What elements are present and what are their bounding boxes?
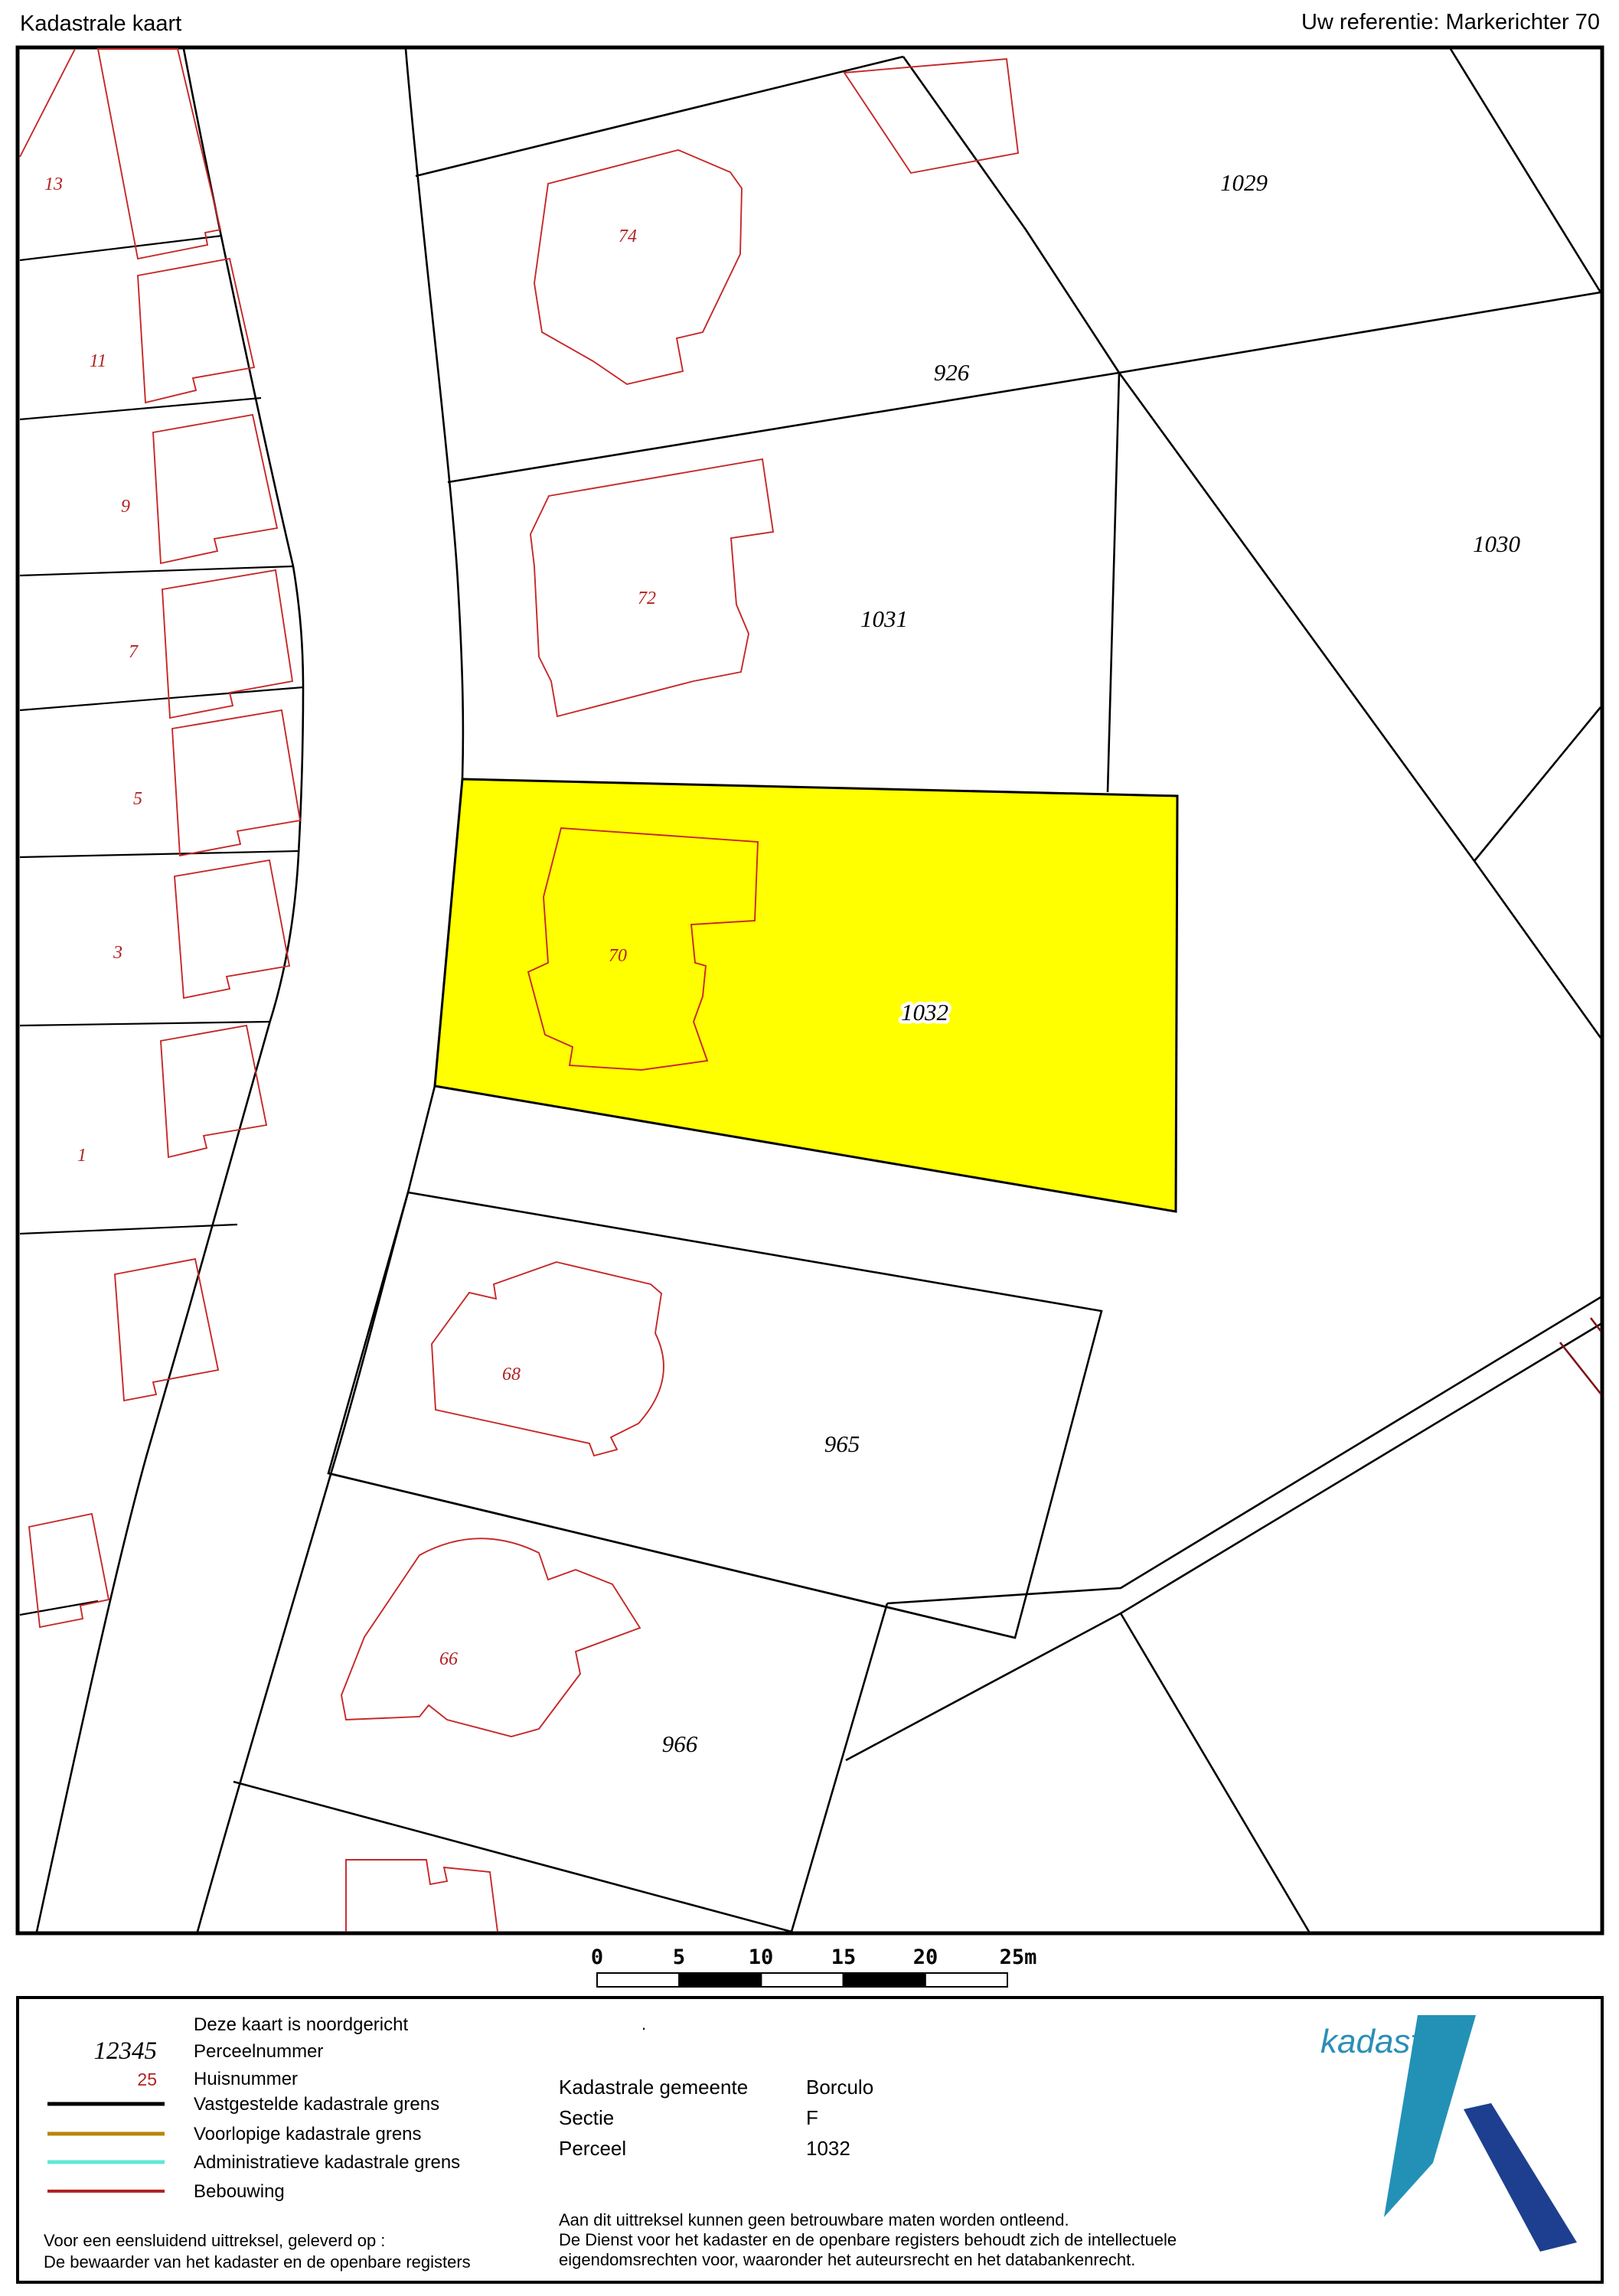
rowhouse-3	[175, 860, 289, 998]
house-number-13: 13	[44, 174, 63, 194]
boundary-1030-wedge-upper	[1474, 707, 1601, 861]
legend-label-huisnummer: Huisnummer	[194, 2069, 298, 2089]
road-left-edge	[37, 49, 303, 1932]
parcel-965-outline	[328, 1192, 1102, 1638]
building-66	[341, 1538, 640, 1737]
parcel-label-1029: 1029	[1220, 169, 1268, 196]
cadastral-extract-page: { "header": { "title": "Kadastrale kaart…	[0, 0, 1619, 2296]
disclaimer-line-2: De Dienst voor het kadaster en de openba…	[559, 2230, 1177, 2249]
house-number-70: 70	[609, 946, 627, 966]
boundary-926-1029	[903, 57, 1119, 373]
house-number-72: 72	[638, 589, 656, 608]
rowhouse-11	[138, 259, 254, 403]
footer-line-1: Voor een eensluidend uittreksel, gelever…	[44, 2231, 385, 2250]
house-number-7: 7	[129, 642, 139, 662]
map-area: 926 1029 1030 1031 1032 965 966 74 72 70…	[18, 47, 1602, 1933]
house-number-1: 1	[77, 1146, 86, 1166]
boundary-966-south-strip	[233, 1782, 792, 1932]
path-edge-upper	[887, 1297, 1601, 1603]
kadaster-logo: kadaster	[1320, 2015, 1577, 2252]
info-label-sectie: Sectie	[559, 2106, 614, 2129]
building-fragment-east-a	[1560, 1342, 1601, 1394]
path-edge-lower	[846, 1324, 1601, 1760]
legend-label-bebouwing: Bebouwing	[194, 2181, 285, 2202]
scale-segment-2	[679, 1973, 761, 1987]
scale-segment-3	[761, 1973, 843, 1987]
scale-label-5: 5	[673, 1945, 685, 1969]
parcel-label-1030: 1030	[1473, 530, 1521, 557]
boundary-1030-wedge-lower	[1474, 861, 1601, 1038]
scale-label-10: 10	[749, 1945, 774, 1969]
house-number-5: 5	[133, 789, 142, 809]
north-orientation-note: Deze kaart is noordgericht	[194, 2014, 408, 2035]
boundary-966-east	[792, 1603, 887, 1932]
reference-text: Uw referentie: Markerichter 70	[1301, 10, 1600, 34]
info-value-perceel: 1032	[806, 2137, 850, 2160]
divider-1-south	[20, 1225, 237, 1234]
boundary-southeast-branch	[1121, 1613, 1309, 1932]
scale-label-0: 0	[591, 1945, 603, 1969]
building-68	[432, 1262, 664, 1456]
legend-label-vastgesteld: Vastgestelde kadastrale grens	[194, 2094, 439, 2115]
kadaster-logo-bar	[1464, 2103, 1577, 2252]
info-value-gemeente: Borculo	[806, 2076, 873, 2099]
rowhouse-9	[153, 415, 277, 563]
legend-box: Deze kaart is noordgericht 12345 Perceel…	[18, 1998, 1602, 2282]
building-partial-top-left-corner	[20, 49, 75, 157]
info-value-sectie: F	[806, 2106, 818, 2129]
boundary-1029-1030	[1119, 292, 1601, 373]
boundary-926-1031	[448, 373, 1119, 482]
scale-segment-4	[844, 1973, 925, 1987]
building-72	[530, 459, 773, 716]
parcel-label-966: 966	[662, 1730, 698, 1757]
disclaimer-line-3: eigendomsrechten voor, waaronder het aut…	[559, 2250, 1135, 2269]
parcel-label-1032: 1032	[901, 999, 948, 1026]
info-label-perceel: Perceel	[559, 2137, 626, 2160]
boundary-965-966	[328, 1473, 1015, 1638]
divider-7-5	[20, 687, 303, 710]
page-title: Kadastrale kaart	[20, 11, 181, 36]
rowhouse-7	[162, 570, 292, 718]
scale-segment-1	[597, 1973, 679, 1987]
parcel-label-965: 965	[824, 1430, 860, 1457]
building-partial-top-right	[844, 59, 1018, 173]
house-number-9: 9	[121, 497, 130, 517]
divider-3-1	[20, 1022, 269, 1026]
divider-5-3	[20, 851, 299, 857]
rowhouse-13	[98, 49, 220, 259]
building-partial-bottom	[346, 1860, 498, 1932]
disclaimer-line-1: Aan dit uittreksel kunnen geen betrouwba…	[559, 2210, 1069, 2229]
house-number-68: 68	[502, 1365, 521, 1384]
boundary-1031-east	[1108, 373, 1119, 792]
scale-bar: 0 5 10 15 20 25m	[591, 1945, 1037, 1987]
house-number-66: 66	[439, 1649, 458, 1669]
house-number-74: 74	[619, 227, 637, 246]
legend-label-perceelnummer: Perceelnummer	[194, 2041, 323, 2062]
footer-line-2: De bewaarder van het kadaster en de open…	[44, 2252, 471, 2272]
info-label-gemeente: Kadastrale gemeente	[559, 2076, 748, 2099]
legend-label-voorlopig: Voorlopige kadastrale grens	[194, 2124, 422, 2144]
info-dot: .	[641, 2014, 646, 2033]
boundary-926-north	[416, 57, 903, 176]
parcel-label-926: 926	[934, 359, 970, 386]
parcel-label-1031: 1031	[860, 605, 908, 632]
parcel-1032-highlight	[435, 779, 1177, 1212]
legend-label-administratief: Administratieve kadastrale grens	[194, 2152, 460, 2173]
sample-house-number: 25	[137, 2069, 157, 2089]
building-74	[534, 150, 742, 384]
divider-11-9	[20, 398, 261, 419]
scale-label-20: 20	[913, 1945, 938, 1969]
boundary-1030-west-diagonal	[1119, 373, 1474, 861]
rowhouse-south-b	[29, 1514, 109, 1627]
rowhouse-south-a	[115, 1259, 218, 1401]
sample-parcel-number: 12345	[94, 2037, 158, 2065]
scale-segment-5	[925, 1973, 1007, 1987]
house-number-3: 3	[113, 943, 122, 963]
house-number-11: 11	[90, 351, 106, 371]
rowhouse-5	[172, 710, 300, 856]
boundary-1029-east	[1451, 49, 1601, 292]
road-right-edge	[197, 49, 463, 1932]
divider-southwest	[20, 1601, 98, 1615]
scale-label-15: 15	[831, 1945, 857, 1969]
scale-label-25m: 25m	[1000, 1945, 1037, 1969]
page-canvas: Kadastrale kaart Uw referentie: Markeric…	[0, 0, 1619, 2296]
